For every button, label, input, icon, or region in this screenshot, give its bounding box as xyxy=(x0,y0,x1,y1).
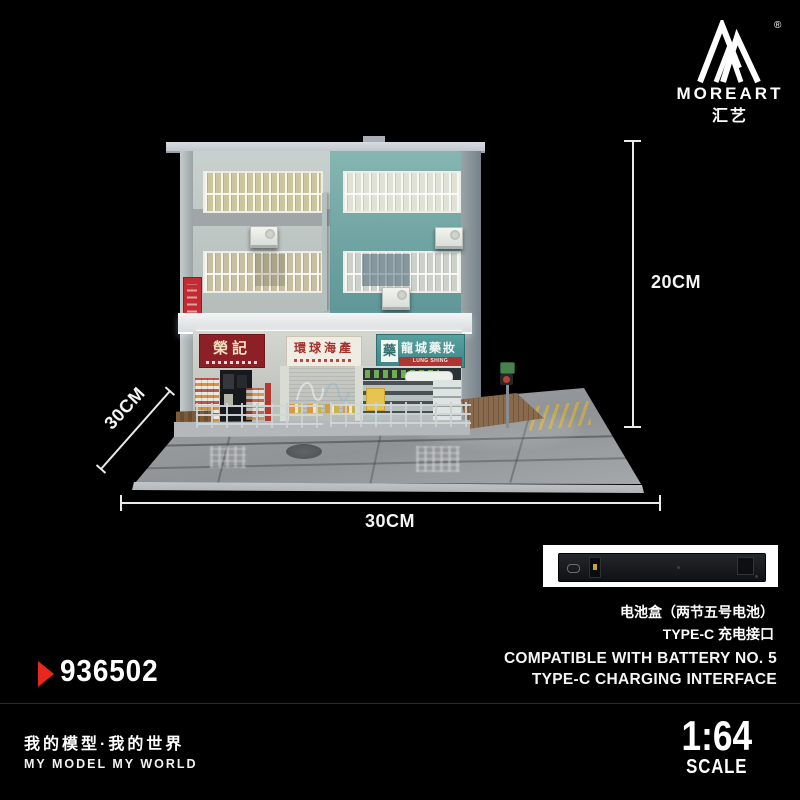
drain-pipe xyxy=(322,193,327,311)
height-dimension-label: 20CM xyxy=(651,272,701,293)
red-lamp xyxy=(503,376,510,383)
manhole-cover xyxy=(286,444,322,459)
pedestrian-railing xyxy=(330,402,471,427)
shop-sign-subtext-en: LUNG SHING MEDICINE xyxy=(399,357,462,366)
door-poster xyxy=(237,375,247,388)
shop-sign-text: 榮記 xyxy=(200,337,264,358)
scale-ratio: 1:64 xyxy=(681,716,752,756)
shop-sign-pharmacy: 藥 龍城藥妝 LUNG SHING MEDICINE xyxy=(376,334,465,368)
footer-divider xyxy=(0,703,800,704)
painted-road-characters xyxy=(210,446,246,468)
shop-sign-subtext-dashes xyxy=(206,361,258,364)
footer-slogan-en: MY MODEL MY WORLD xyxy=(24,757,198,771)
battery-caption-cn-1: 电池盒（两节五号电池） xyxy=(620,602,774,622)
shop-sign-seafood: 環球海產 xyxy=(286,336,362,367)
scale-word: SCALE xyxy=(681,756,752,779)
diorama-photo: 榮記 環球海產 藥 龍城藥妝 LUNG SHING MEDICINE xyxy=(0,0,800,540)
red-arrow-icon xyxy=(38,661,54,687)
shop-sign-text: 龍城藥妝 xyxy=(401,339,457,356)
battery-caption-en-2: TYPE-C CHARGING INTERFACE xyxy=(532,671,777,689)
battery-bar xyxy=(558,553,766,582)
right-side-wall xyxy=(461,151,481,423)
window-strip xyxy=(203,171,323,213)
battery-box-photo xyxy=(543,545,778,587)
window-tint-overlay xyxy=(255,254,285,286)
pedestrian-railing xyxy=(196,403,323,428)
painted-road-characters xyxy=(416,446,460,472)
switch-contact xyxy=(593,564,597,570)
air-conditioner xyxy=(435,227,463,249)
dimension-tick xyxy=(624,426,641,428)
dimension-tick xyxy=(659,495,661,511)
dimension-tick xyxy=(624,140,641,142)
height-dimension-line xyxy=(632,141,634,428)
footer-slogan-cn: 我的模型·我的世界 xyxy=(24,730,184,754)
power-switch xyxy=(589,557,601,578)
screw-dot xyxy=(755,575,758,578)
shop-sign-subtext-dashes xyxy=(294,359,355,362)
air-conditioner xyxy=(250,226,278,248)
shop-sign-text: 環球海產 xyxy=(287,339,361,356)
screw-dot xyxy=(677,566,680,569)
door-poster xyxy=(223,374,234,389)
road-seam xyxy=(369,428,383,485)
product-code: 936502 xyxy=(60,653,159,689)
width-dimension-line xyxy=(121,502,661,504)
medicine-badge: 藥 xyxy=(381,340,398,362)
battery-caption-cn-2: TYPE-C 充电接口 xyxy=(663,624,774,644)
connector-socket xyxy=(737,557,754,575)
usb-c-port xyxy=(567,564,580,573)
traffic-light-green-sign xyxy=(500,362,515,374)
battery-caption-en-1: COMPATIBLE WITH BATTERY NO. 5 xyxy=(504,650,777,668)
window-strip xyxy=(343,171,461,213)
window-tint-overlay xyxy=(362,254,410,286)
poster: ® MOREART 汇艺 xyxy=(0,0,800,800)
traffic-light-lamp xyxy=(500,374,513,385)
shop-sign-wing-kee: 榮記 xyxy=(199,334,265,368)
width-dimension-label: 30CM xyxy=(365,511,415,532)
scale-badge: 1:64 SCALE xyxy=(681,716,752,779)
air-conditioner xyxy=(382,287,410,310)
dimension-tick xyxy=(120,495,122,511)
